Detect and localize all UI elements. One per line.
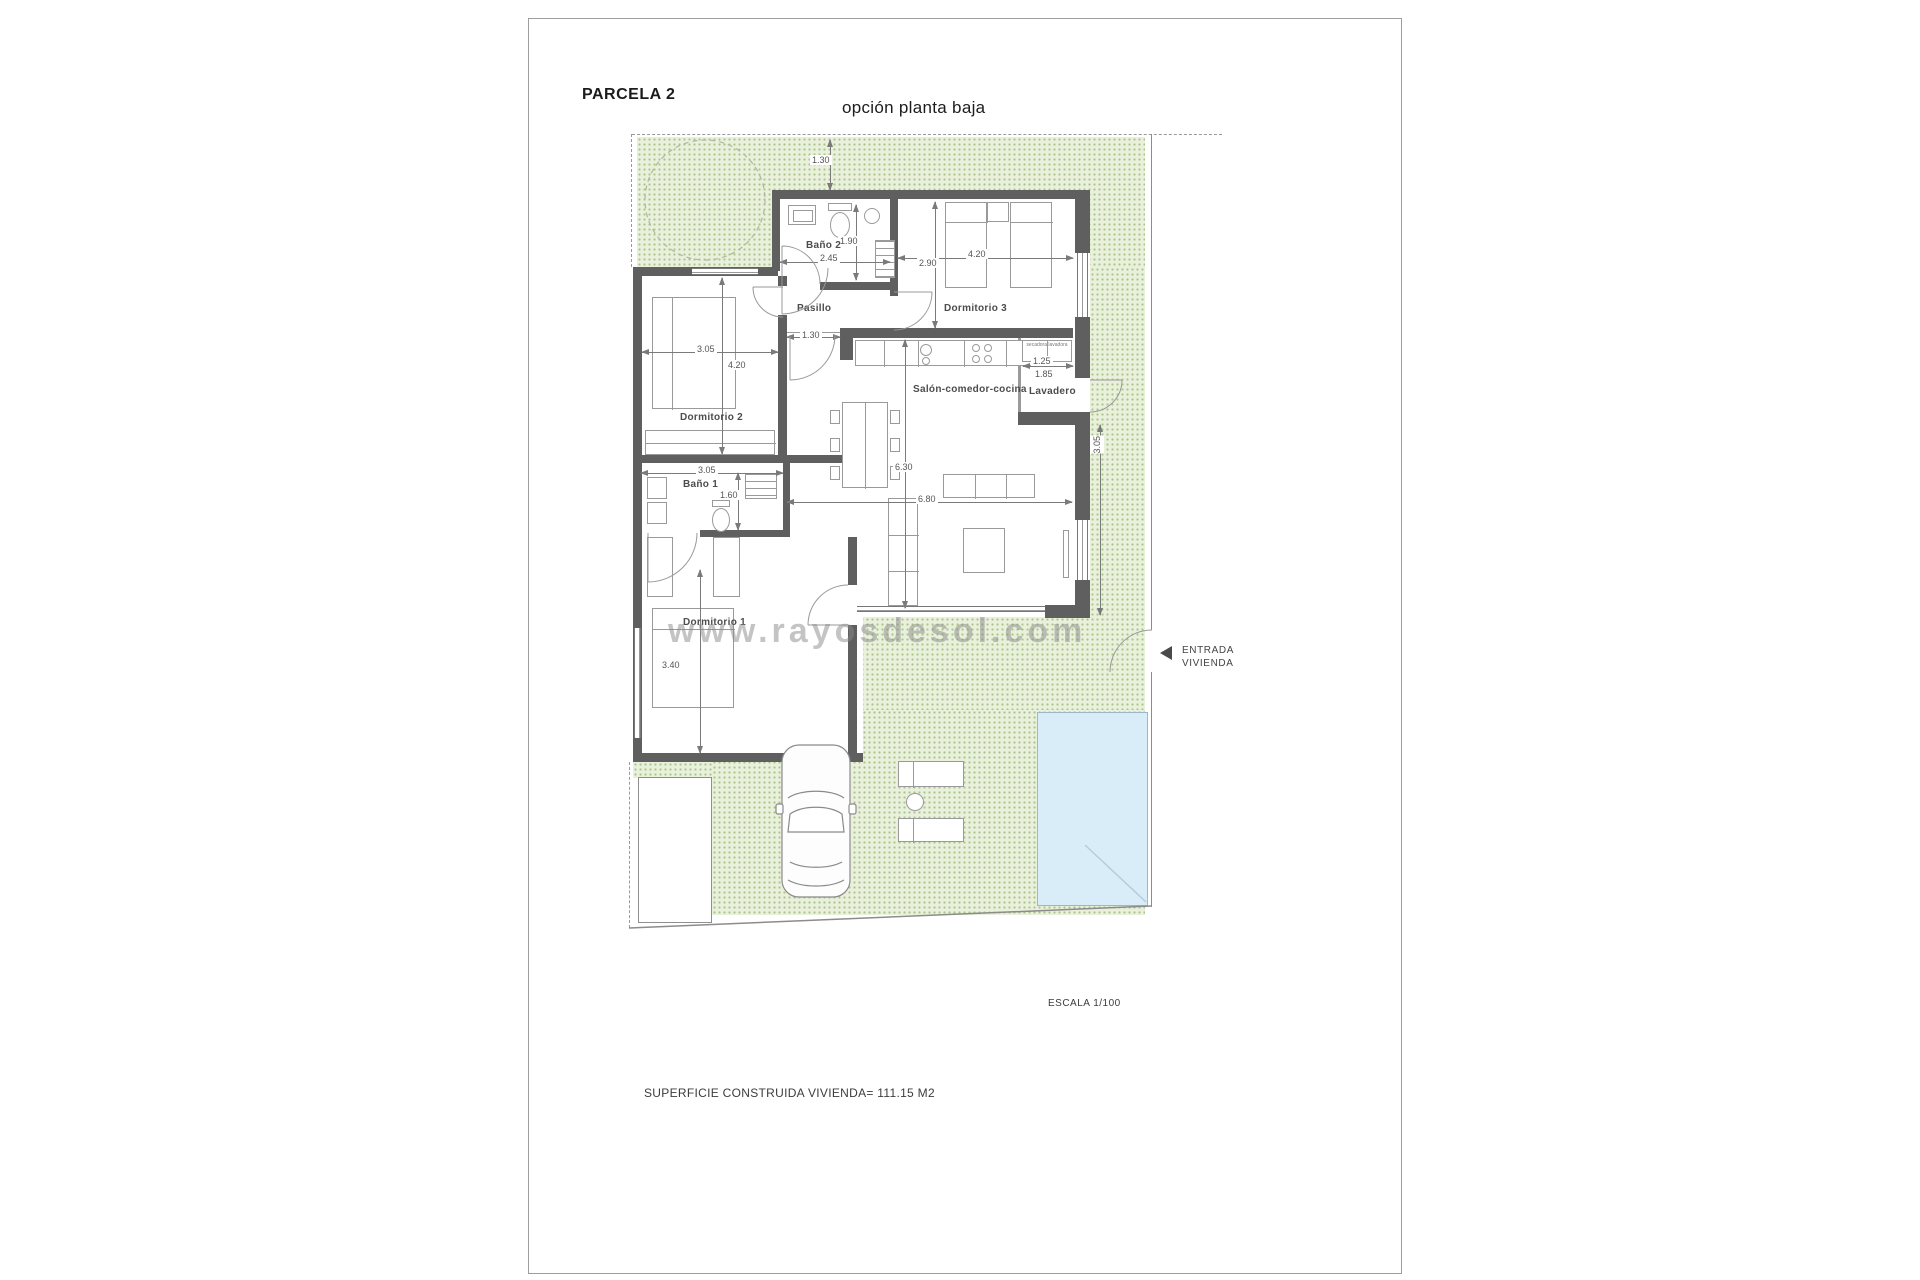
car-mirror [776,804,783,814]
door-swing-bano1 [648,533,697,582]
door-swing-lavadero [1090,380,1122,412]
car-mirror [849,804,856,814]
car-windshield [788,807,844,832]
floor-plan-page: PARCELA 2 opción planta baja [0,0,1920,1280]
watermark: www.rayosdesol.com [668,612,1086,651]
pool-steps [1085,845,1146,902]
door-swing-bano2 [782,246,820,284]
door-swing-entry [782,268,828,314]
door-swing-salon [790,335,835,380]
tree-symbol [645,140,765,260]
door-swing-dorm3 [894,292,932,330]
door-swing-dorm2 [753,287,783,317]
gate-swing [1110,630,1152,672]
car [776,745,856,897]
boundary-bottom [629,906,1151,928]
